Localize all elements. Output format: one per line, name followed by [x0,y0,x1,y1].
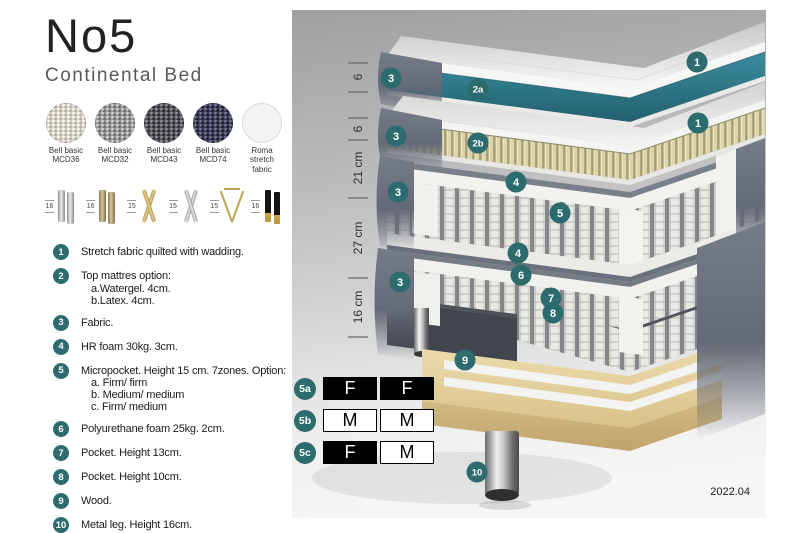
dimension-label: 6 [351,125,365,132]
leg-hairpin-gold-icon [222,188,242,224]
firmness-row-badge: 5a [294,378,316,400]
legend-list: 1 Stretch fabric quilted with wadding. 2… [45,244,292,533]
fabric-name: Roma [251,146,272,155]
leg-option: 16 [86,188,118,224]
legend-item: 9 Wood. [53,493,292,509]
svg-text:2a: 2a [473,85,484,96]
leg-cylinder-silver-icon [57,188,77,224]
fabric-swatch: Bell basicMCD36 [45,103,87,174]
legend-text: Fabric. [81,317,113,330]
version-label: 2022.04 [690,486,750,498]
firmness-row-badge: 5b [294,410,316,432]
legend-number-badge: 7 [53,445,69,461]
legend-item: 5 Micropocket. Height 15 cm. 7zones. Opt… [53,363,292,414]
dimension-label: 27 cm [351,222,365,255]
legend-item: 8 Pocket. Height 10cm. [53,469,292,485]
callout-badge: 2b [468,133,489,154]
fabric-code: MCD74 [199,155,226,164]
svg-text:4: 4 [513,177,520,189]
callout-badge: 5 [550,203,571,224]
svg-text:4: 4 [515,248,522,260]
legend-subtext: b.Latex. 4cm. [81,295,171,307]
fabric-code: MCD36 [52,155,79,164]
firmness-cell: M [380,441,434,464]
leg-option: 15 [127,188,159,224]
legend-number-badge: 5 [53,363,69,379]
legend-number-badge: 4 [53,339,69,355]
fabric-code: MCD32 [101,155,128,164]
leg-height: 16 [86,198,95,215]
fabric-swatch-image [95,103,135,143]
callout-badge: 3 [386,126,407,147]
fabric-swatch: Bell basicMCD74 [192,103,234,174]
page-title: No5 [45,12,292,59]
leg-height: 15 [127,198,136,215]
legend-subtext: a.Watergel. 4cm. [81,283,171,295]
leg-height: 16 [251,198,260,215]
firmness-cell: M [323,409,377,432]
fabric-swatch-image [242,103,282,143]
firmness-cell: F [323,377,377,400]
legend-item: 10 Metal leg. Height 16cm. [53,517,292,533]
callout-badge: 2a [468,79,489,100]
leg-cross-gold-icon [139,188,159,224]
svg-text:1: 1 [695,118,701,130]
fabric-name: Bell basic [49,146,83,155]
svg-text:1: 1 [694,57,700,69]
leg-cross-silver-icon [181,188,201,224]
legend-number-badge: 8 [53,469,69,485]
firmness-row-badge: 5c [294,442,316,464]
legend-item: 3 Fabric. [53,315,292,331]
legend-subtext: b. Medium/ medium [81,389,286,401]
fabric-swatch-image [144,103,184,143]
firmness-row: 5a F F [294,377,434,400]
legend-text: Metal leg. Height 16cm. [81,519,192,532]
legend-text: Top mattres option: [81,270,171,283]
fabric-swatch-image [193,103,233,143]
fabric-name: Bell basic [196,146,230,155]
leg-black-gold-icon [263,188,283,224]
legend-number-badge: 1 [53,244,69,260]
leg-option: 16 [251,188,283,224]
legend-item: 2 Top mattres option: a.Watergel. 4cm. b… [53,268,292,307]
page-subtitle: Continental Bed [45,65,292,87]
leg-options-row: 16 16 15 15 15 16 [45,182,283,230]
callout-badge: 3 [381,68,402,89]
info-column: No5 Continental Bed Bell basicMCD36 Bell… [0,0,292,533]
legend-number-badge: 3 [53,315,69,331]
fabric-name: Bell basic [98,146,132,155]
legend-number-badge: 9 [53,493,69,509]
svg-text:3: 3 [388,73,394,85]
legend-subtext: a. Firm/ firm [81,377,286,389]
callout-badge: 6 [511,265,532,286]
legend-number-badge: 6 [53,421,69,437]
legend-text: Pocket. Height 13cm. [81,447,182,460]
firmness-table: 5a F F 5b M M 5c F M [294,377,434,473]
leg-height: 15 [169,198,178,215]
leg-height: 15 [210,198,219,215]
legend-item: 6 Polyurethane foam 25kg. 2cm. [53,421,292,437]
callout-badge: 10 [467,462,488,483]
fabric-code: MCD43 [150,155,177,164]
svg-text:3: 3 [397,277,403,289]
fabric-swatch: Bell basicMCD43 [143,103,185,174]
leg-option: 15 [210,188,242,224]
firmness-cell: F [323,441,377,464]
firmness-cell: M [380,409,434,432]
fabric-name: Bell basic [147,146,181,155]
legend-text: Pocket. Height 10cm. [81,471,182,484]
fabric-swatch: Romastretch fabric [241,103,283,174]
callout-badge: 4 [508,243,529,264]
legend-number-badge: 2 [53,268,69,284]
firmness-row: 5b M M [294,409,434,432]
callout-badge: 4 [506,172,527,193]
legend-number-badge: 10 [53,517,69,533]
svg-text:8: 8 [550,308,556,320]
leg-height: 16 [45,198,54,215]
legend-text: Polyurethane foam 25kg. 2cm. [81,423,225,436]
svg-text:3: 3 [393,131,399,143]
fabric-swatch: Bell basicMCD32 [94,103,136,174]
legend-text: Wood. [81,495,112,508]
leg-option: 15 [169,188,201,224]
svg-text:6: 6 [518,270,524,282]
legend-text: HR foam 30kg. 3cm. [81,341,178,354]
product-sheet: No5 Continental Bed Bell basicMCD36 Bell… [0,0,800,533]
firmness-row: 5c F M [294,441,434,464]
fabric-swatch-row: Bell basicMCD36 Bell basicMCD32 Bell bas… [45,103,292,174]
svg-text:3: 3 [395,187,401,199]
svg-text:9: 9 [462,355,468,367]
leg-cylinder-bronze-icon [98,188,118,224]
fabric-skirt-right [697,222,765,440]
dimension-label: 21 cm [351,152,365,185]
svg-text:10: 10 [472,468,483,479]
firmness-cell: F [380,377,434,400]
leg-option: 16 [45,188,77,224]
callout-badge: 1 [687,52,708,73]
callout-badge: 3 [388,182,409,203]
callout-badge: 3 [390,272,411,293]
callout-badge: 8 [543,303,564,324]
legend-text: Stretch fabric quilted with wadding. [81,246,244,259]
svg-text:5: 5 [557,208,563,220]
legend-item: 4 HR foam 30kg. 3cm. [53,339,292,355]
legend-item: 7 Pocket. Height 13cm. [53,445,292,461]
svg-text:2b: 2b [472,139,483,150]
dimension-label: 16 cm [351,291,365,324]
callout-badge: 1 [688,113,709,134]
fabric-swatch-image [46,103,86,143]
callout-badge: 9 [455,350,476,371]
legend-subtext: c. Firm/ medium [81,401,286,413]
legend-item: 1 Stretch fabric quilted with wadding. [53,244,292,260]
fabric-code: stretch fabric [250,155,274,173]
legend-text: Micropocket. Height 15 cm. 7zones. Optio… [81,365,286,378]
dimension-label: 6 [351,73,365,80]
